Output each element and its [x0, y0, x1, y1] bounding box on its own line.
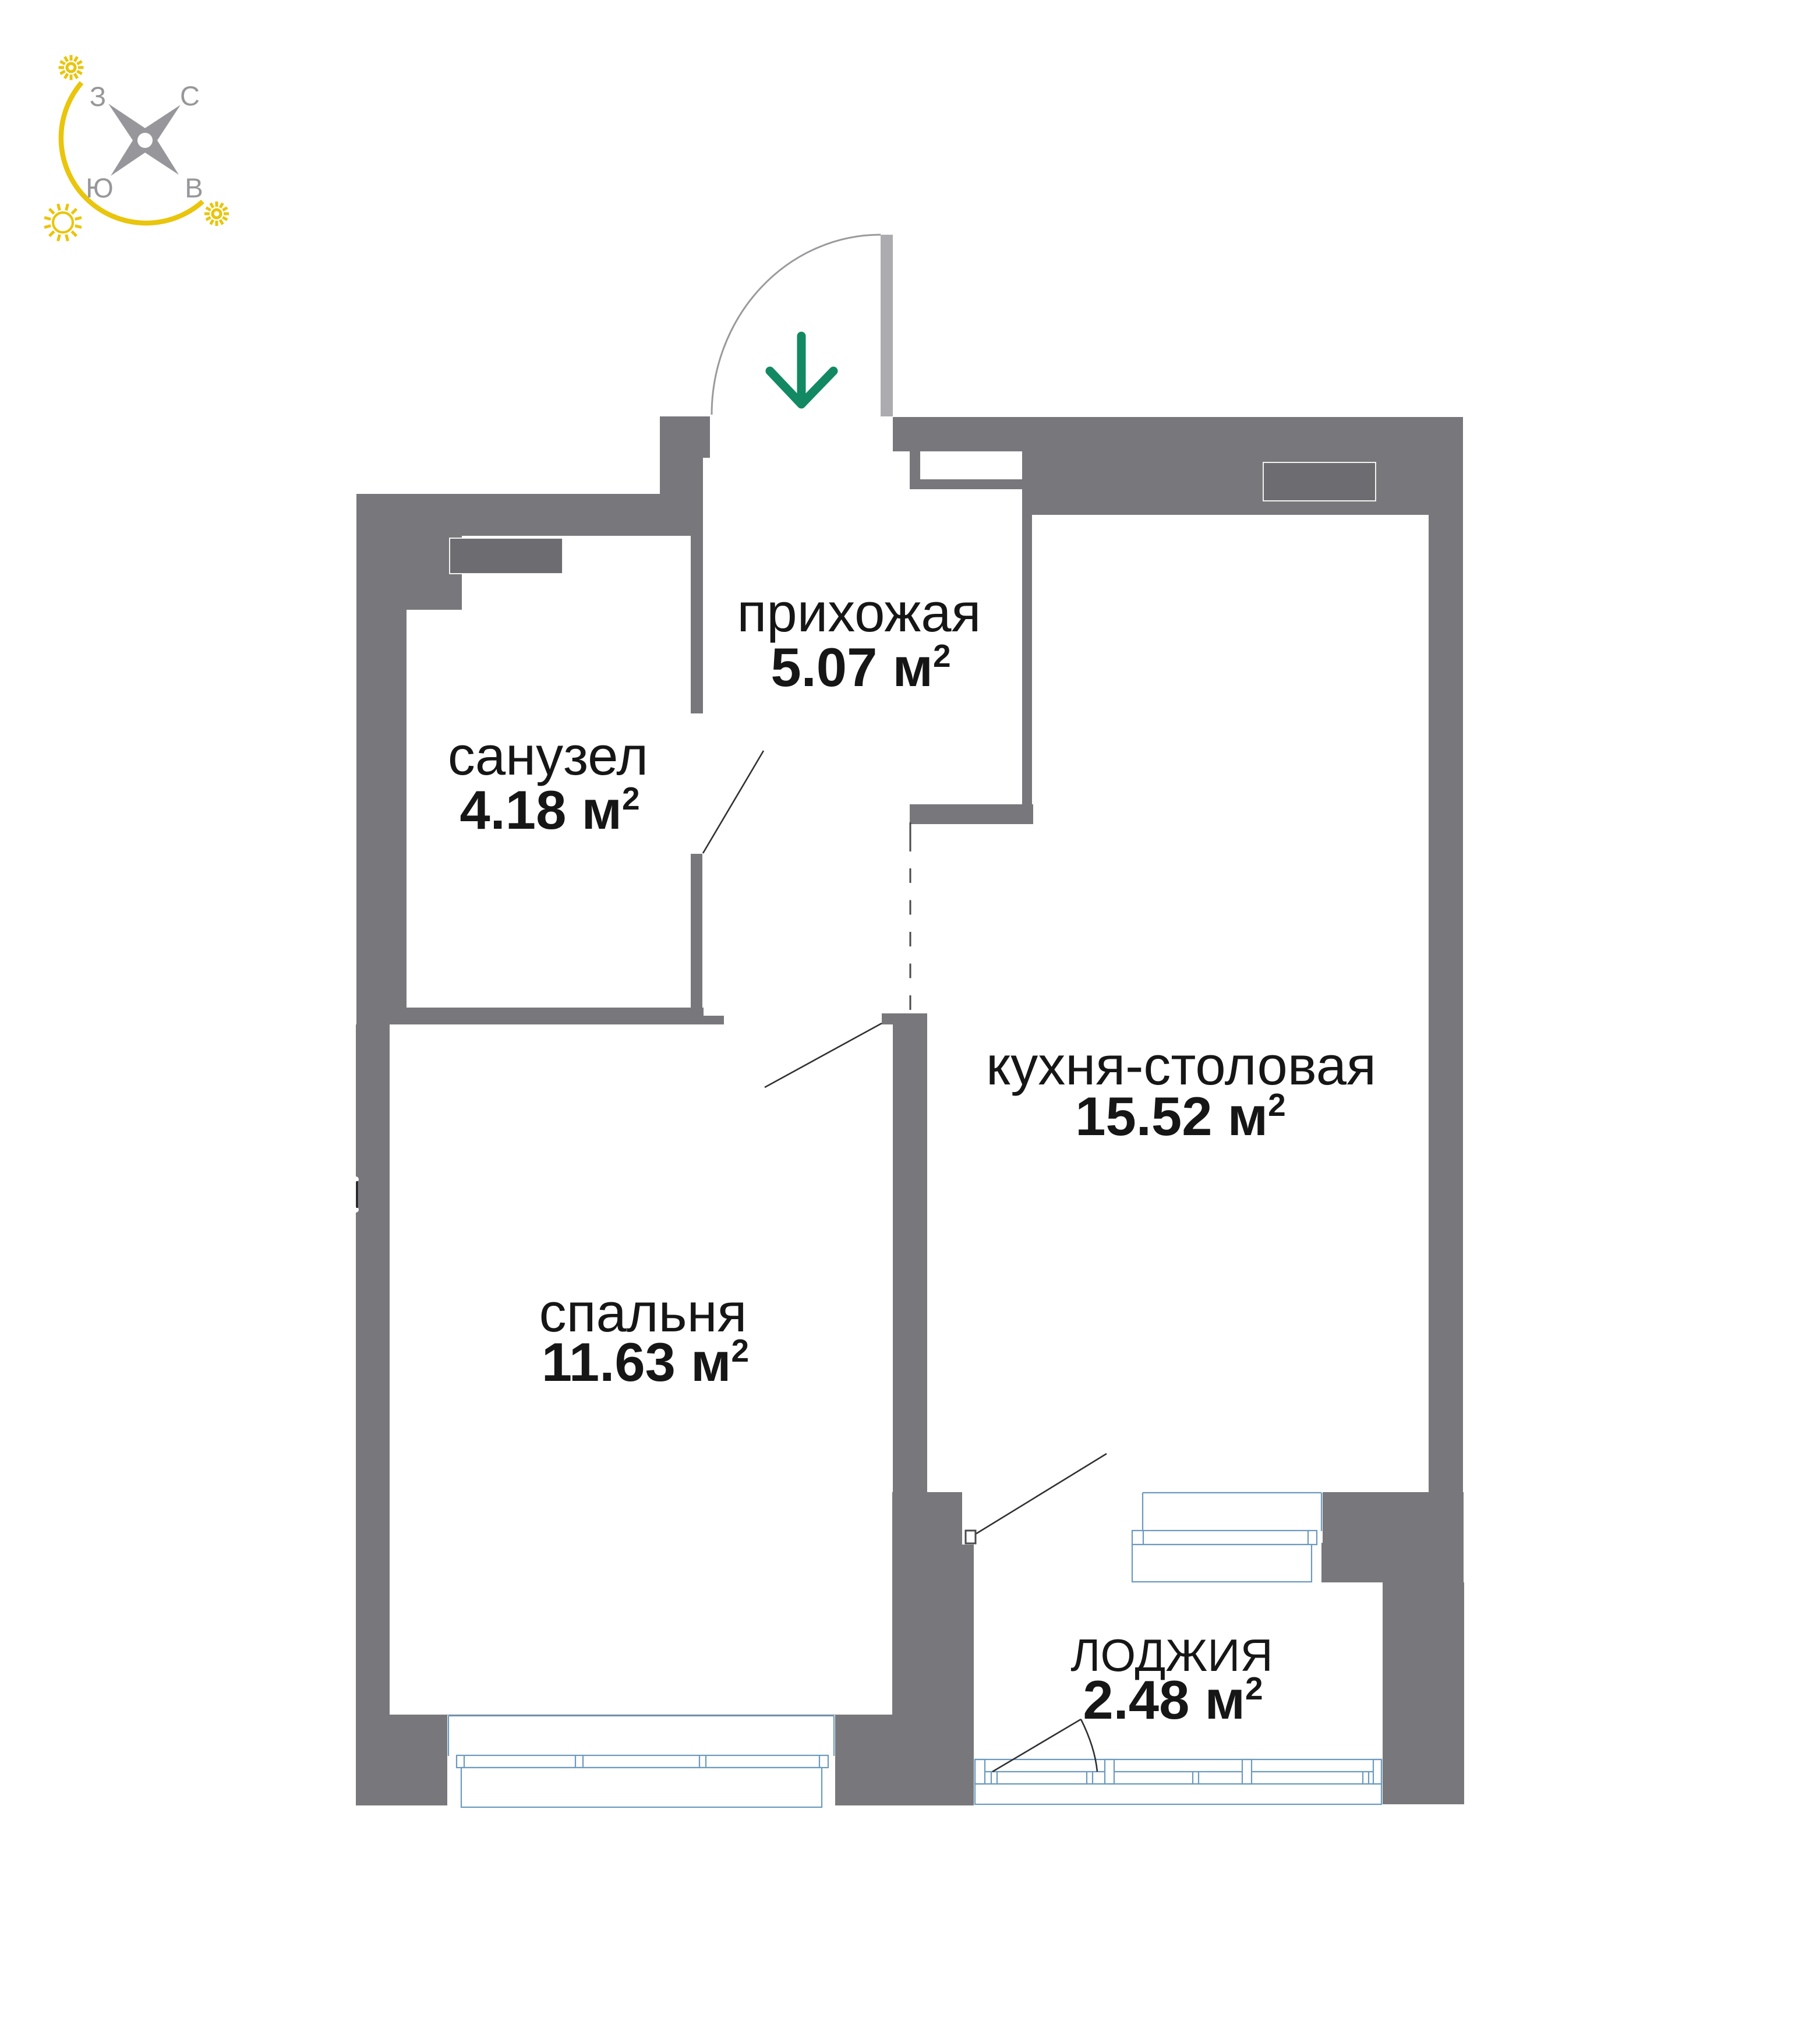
svg-text:5.07 м2: 5.07 м2 — [771, 637, 950, 698]
svg-text:Ю: Ю — [86, 172, 113, 203]
svg-text:2.48 м2: 2.48 м2 — [1083, 1669, 1263, 1730]
svg-text:санузел: санузел — [448, 725, 648, 786]
svg-text:15.52 м2: 15.52 м2 — [1075, 1086, 1285, 1147]
svg-text:11.63 м2: 11.63 м2 — [542, 1331, 749, 1393]
svg-text:В: В — [185, 172, 203, 203]
svg-text:З: З — [90, 81, 106, 112]
svg-text:прихожая: прихожая — [737, 582, 981, 643]
svg-text:С: С — [180, 80, 200, 111]
svg-text:4.18 м2: 4.18 м2 — [460, 779, 639, 840]
